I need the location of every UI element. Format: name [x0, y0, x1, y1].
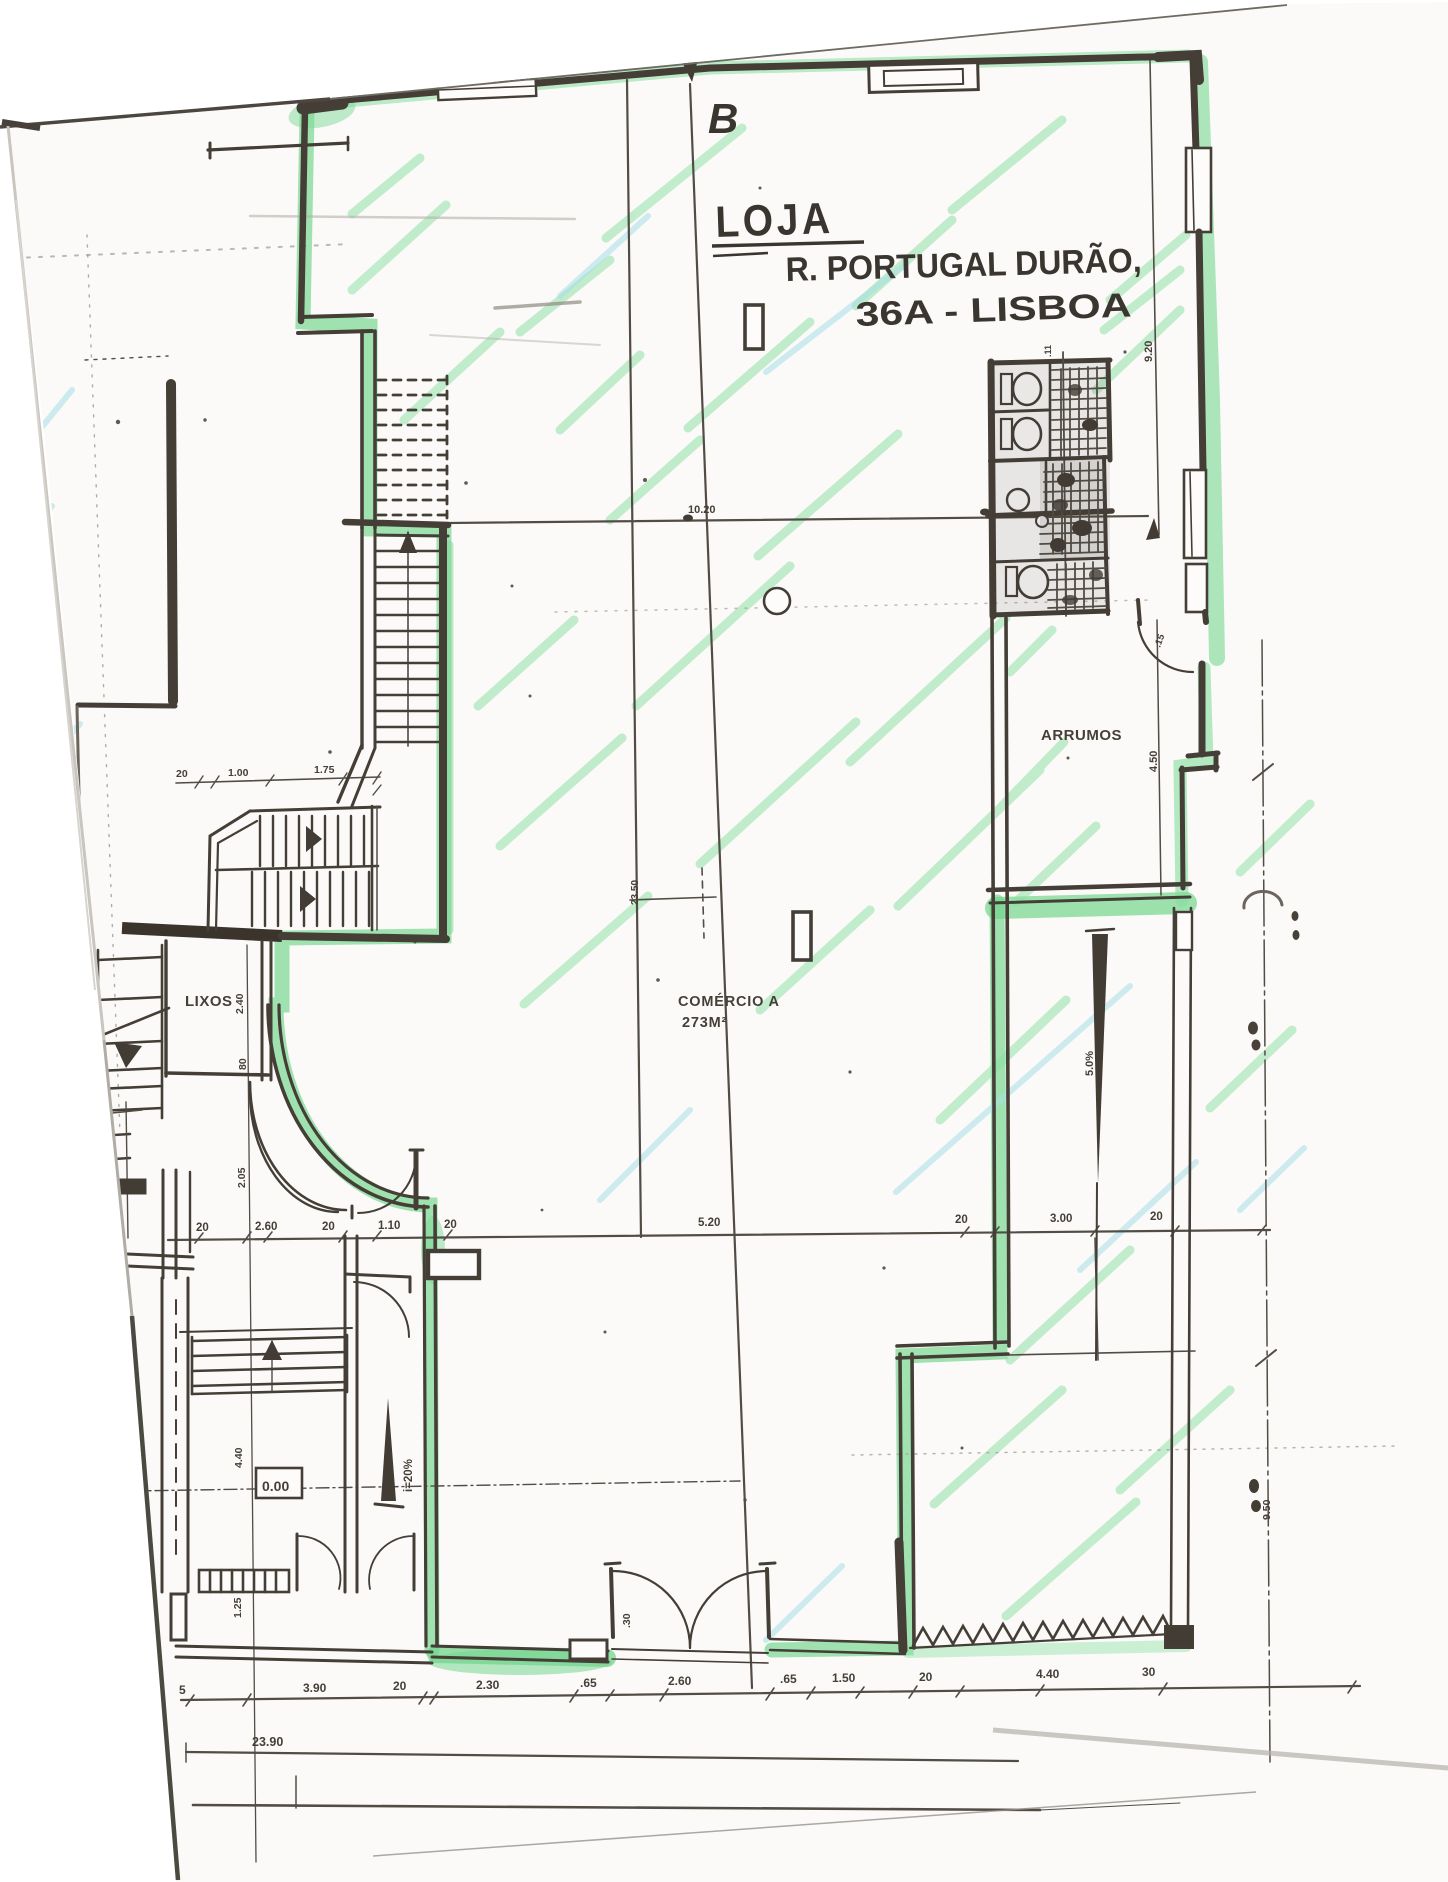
svg-text:2.40: 2.40 [234, 993, 246, 1014]
svg-text:30: 30 [1142, 1665, 1156, 1679]
svg-text:20: 20 [196, 1222, 209, 1234]
svg-text:1.50: 1.50 [832, 1671, 856, 1685]
svg-text:2.60: 2.60 [255, 1221, 277, 1233]
svg-text:1.10: 1.10 [378, 1220, 400, 1232]
svg-text:273M²: 273M² [682, 1015, 727, 1031]
svg-text:9.50: 9.50 [1261, 1499, 1273, 1520]
svg-text:i=20%: i=20% [403, 1459, 415, 1492]
svg-text:B: B [708, 95, 738, 142]
svg-text:20: 20 [393, 1679, 407, 1693]
svg-text:9.20: 9.20 [1143, 341, 1155, 362]
svg-text:1.25: 1.25 [232, 1597, 244, 1618]
svg-text:20: 20 [955, 1214, 968, 1226]
svg-text:4.40: 4.40 [1036, 1667, 1060, 1681]
svg-text:10.20: 10.20 [688, 504, 716, 516]
svg-text:5.0%: 5.0% [1084, 1051, 1096, 1076]
svg-text:80: 80 [237, 1058, 249, 1070]
svg-text:1.75: 1.75 [314, 764, 335, 776]
svg-text:LIXOS: LIXOS [185, 993, 233, 1010]
svg-text:3.00: 3.00 [1050, 1213, 1072, 1225]
svg-text:5.20: 5.20 [698, 1217, 720, 1229]
svg-text:4.50: 4.50 [1148, 751, 1160, 772]
svg-text:2.60: 2.60 [668, 1674, 692, 1688]
svg-text:1.00: 1.00 [228, 767, 249, 779]
svg-text:2.05: 2.05 [236, 1167, 248, 1188]
svg-text:COMÉRCIO A: COMÉRCIO A [678, 993, 780, 1010]
svg-text:LOJA: LOJA [715, 194, 835, 247]
svg-text:20: 20 [919, 1670, 933, 1684]
svg-text:4.40: 4.40 [233, 1447, 245, 1468]
svg-text:20: 20 [322, 1221, 335, 1233]
svg-text:20: 20 [1150, 1211, 1163, 1223]
svg-text:23.90: 23.90 [252, 1735, 283, 1749]
svg-text:.65: .65 [580, 1676, 597, 1690]
svg-text:20: 20 [444, 1219, 457, 1231]
svg-text:3.90: 3.90 [303, 1681, 327, 1695]
svg-text:.30: .30 [621, 1613, 633, 1628]
svg-text:.65: .65 [780, 1672, 797, 1686]
svg-text:.11: .11 [1043, 345, 1053, 357]
svg-text:ARRUMOS: ARRUMOS [1041, 727, 1122, 744]
svg-text:0.00: 0.00 [262, 1478, 289, 1494]
svg-text:5: 5 [179, 1683, 186, 1697]
svg-text:2.30: 2.30 [476, 1678, 500, 1692]
svg-text:20: 20 [176, 768, 188, 780]
svg-text:23.50: 23.50 [630, 880, 641, 905]
